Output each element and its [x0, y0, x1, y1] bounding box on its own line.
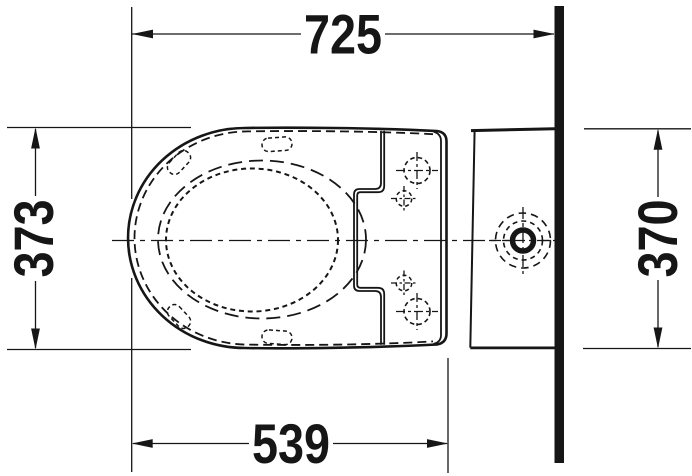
hole-crosshair [396, 152, 438, 189]
supply-hole-crosshair [489, 207, 557, 274]
dimension-label-top: 725 [304, 3, 382, 66]
mounting-hole-large-top [396, 152, 438, 189]
dimension-top: 725 [132, 3, 555, 66]
hinge-bracket [354, 131, 384, 345]
dimension-label-bottom: 539 [252, 412, 330, 475]
ceramic-body-top-edge [471, 129, 555, 131]
seat-lid [128, 128, 446, 349]
dimension-left: 373 [2, 128, 65, 350]
hole-crosshair [396, 293, 438, 330]
dimension-bottom: 539 [132, 412, 448, 475]
arrowhead-right [427, 439, 448, 448]
wall-section [555, 6, 565, 463]
arrowhead-down [31, 329, 40, 350]
seat-bumper-lower-left [165, 302, 194, 331]
hole-crosshair [391, 186, 417, 211]
dimension-label-left: 373 [2, 200, 65, 278]
seat-bumper-top [262, 136, 293, 152]
bowl-rim [158, 161, 366, 319]
dimension-label-right: 370 [626, 200, 689, 278]
water-supply-hole [489, 207, 557, 274]
ceramic-body-left-edge [470, 130, 474, 347]
seat-bumper-upper-left [165, 148, 194, 177]
mounting-hole-small-bottom [391, 271, 417, 296]
bowl-rim-outer-ellipse [158, 161, 366, 319]
arrowhead-right [534, 30, 555, 39]
seat-bumper-bottom [262, 329, 293, 345]
arrowhead-up [654, 129, 663, 150]
toilet-top-view-drawing: 725 373 370 539 [0, 0, 692, 476]
seat-lid-outline [128, 128, 446, 349]
arrowhead-up [31, 128, 40, 149]
arrowhead-down [654, 328, 663, 349]
dimension-right: 370 [626, 129, 689, 349]
mounting-hole-large-bottom [396, 293, 438, 330]
arrowhead-left [132, 30, 153, 39]
technical-drawing-canvas: 725 373 370 539 [0, 0, 692, 476]
mounting-hole-small-top [391, 186, 417, 211]
arrowhead-left [132, 439, 153, 448]
hole-crosshair [391, 271, 417, 296]
